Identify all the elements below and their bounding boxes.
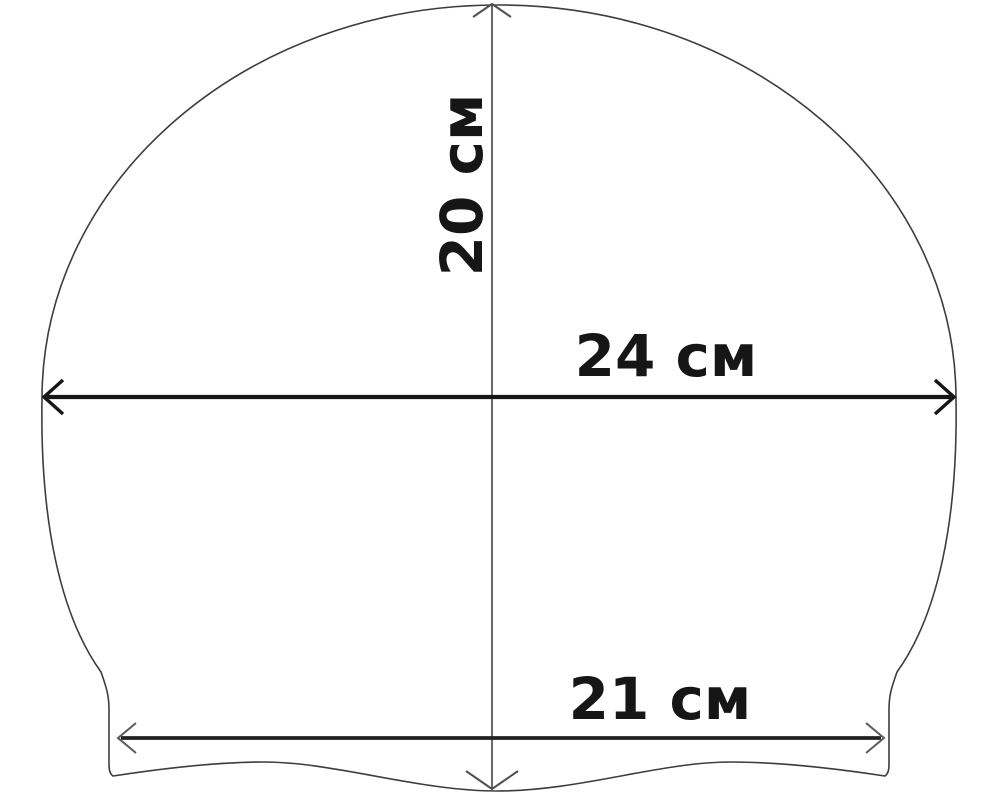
brim-dimension-label: 21 см [569, 665, 752, 733]
height-dimension-label: 20 см [428, 94, 496, 277]
diagram-canvas: 20 см 24 см 21 см [0, 0, 1000, 796]
width-dimension-label: 24 см [575, 322, 758, 390]
swim-cap-dimension-drawing: 20 см 24 см 21 см [0, 0, 1000, 796]
